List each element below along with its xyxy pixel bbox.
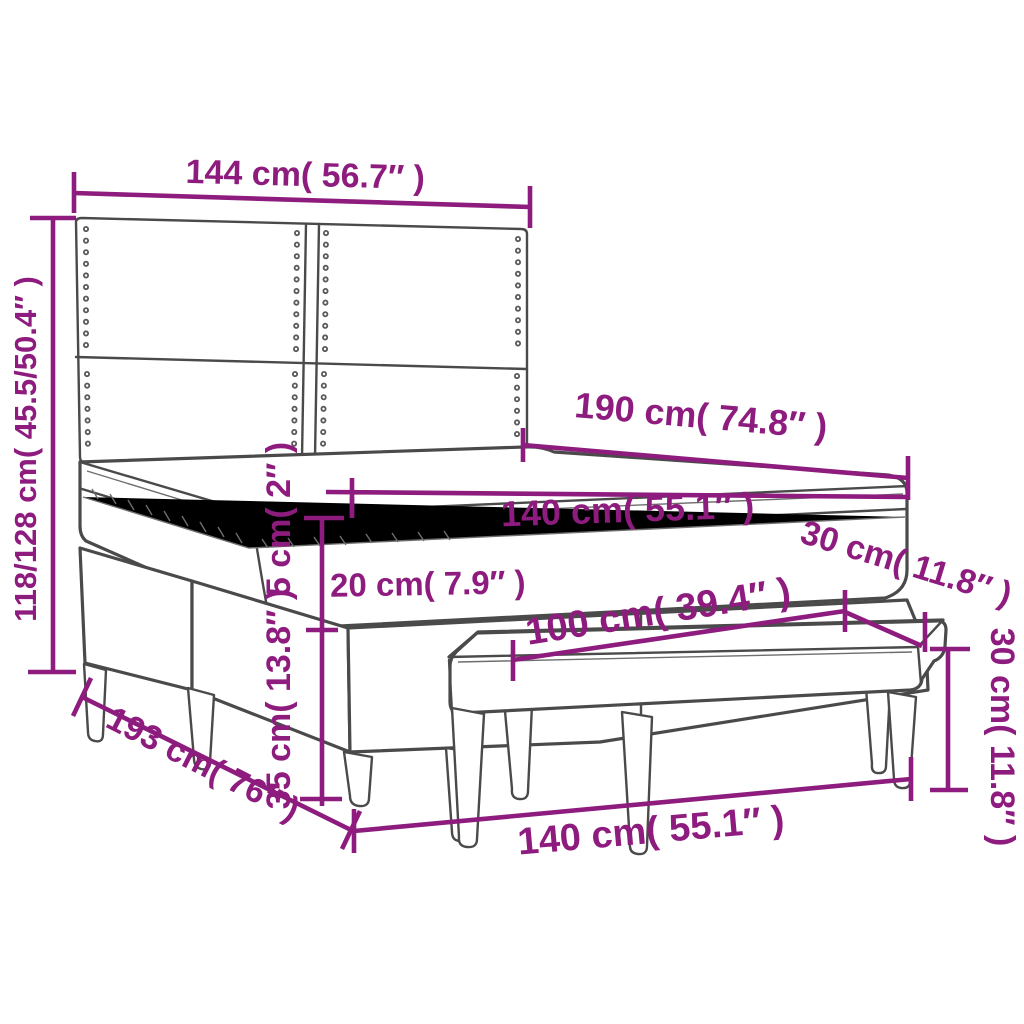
dim-mattress-thickness-label: 20 cm( 7.9″ ) (330, 563, 526, 603)
dim-bench-height-label: 30 cm( 11.8″ ) (983, 628, 1021, 847)
dim-bench-height: 30 cm( 11.8″ ) (930, 628, 1021, 847)
bench-leg (866, 688, 890, 773)
bed-leg (344, 752, 372, 806)
dim-total-height: 118/128 cm( 45.5/50.4″ ) (8, 218, 76, 672)
bench-leg (504, 700, 532, 799)
headboard (76, 218, 527, 462)
dim-bed-width-front-label: 140 cm( 55.1″ ) (516, 798, 786, 863)
bed-dimension-diagram: 144 cm( 56.7″ ) 118/128 cm( 45.5/50.4″ )… (0, 0, 1024, 1024)
dim-mattress-length-label: 190 cm( 74.8″ ) (573, 384, 829, 447)
dim-total-height-label: 118/128 cm( 45.5/50.4″ ) (8, 276, 43, 622)
dim-topper-thickness-label: 5 cm( 2″ ) (260, 442, 298, 596)
dim-headboard-width: 144 cm( 56.7″ ) (74, 153, 530, 228)
dim-headboard-width-label: 144 cm( 56.7″ ) (185, 153, 425, 197)
